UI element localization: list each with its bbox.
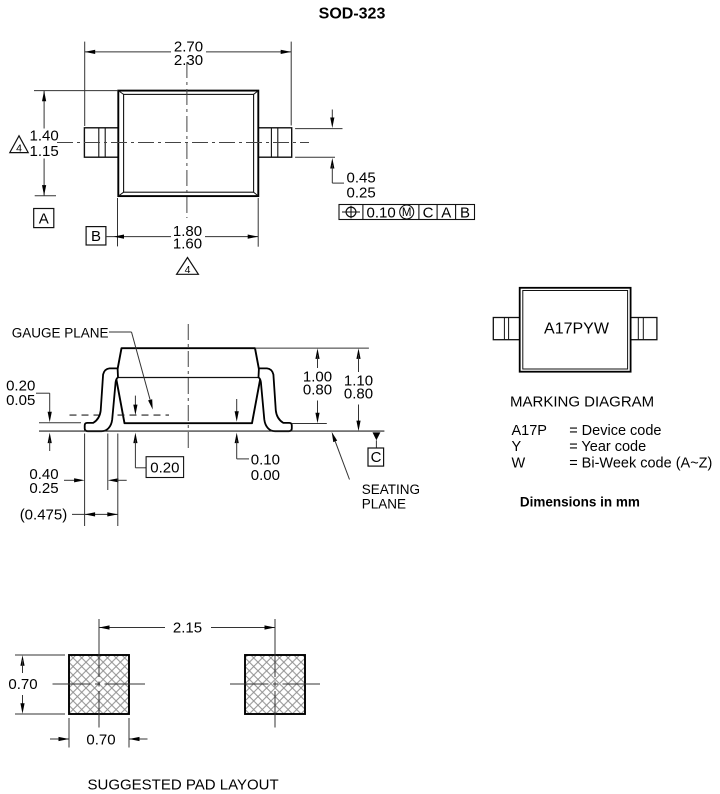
svg-text:0.10: 0.10 [367, 204, 396, 221]
svg-text:0.20: 0.20 [150, 459, 179, 476]
svg-text:MARKING DIAGRAM: MARKING DIAGRAM [510, 393, 654, 410]
svg-text:= Year code: = Year code [569, 439, 646, 455]
svg-text:= Device code: = Device code [569, 423, 661, 439]
svg-text:C: C [371, 449, 382, 466]
svg-text:0.25: 0.25 [347, 184, 376, 201]
svg-text:4: 4 [16, 142, 22, 154]
svg-text:A17PYW: A17PYW [544, 321, 610, 338]
svg-text:A: A [39, 210, 49, 227]
svg-text:Dimensions in mm: Dimensions in mm [520, 494, 640, 509]
svg-text:1.60: 1.60 [173, 236, 202, 253]
svg-text:2.30: 2.30 [174, 52, 203, 69]
svg-text:0.25: 0.25 [29, 480, 58, 497]
svg-text:C: C [423, 204, 434, 221]
svg-text:0.05: 0.05 [6, 392, 35, 409]
svg-text:A: A [441, 204, 451, 221]
svg-text:SUGGESTED PAD LAYOUT: SUGGESTED PAD LAYOUT [88, 776, 279, 793]
svg-text:M: M [402, 207, 412, 219]
svg-text:4: 4 [185, 264, 191, 276]
svg-text:B: B [91, 228, 101, 245]
svg-text:= Bi-Week code (A~Z): = Bi-Week code (A~Z) [569, 456, 712, 472]
svg-text:0.70: 0.70 [86, 731, 115, 748]
svg-text:(0.475): (0.475) [20, 506, 68, 523]
svg-text:GAUGE PLANE: GAUGE PLANE [12, 325, 109, 340]
svg-text:A17P: A17P [512, 423, 547, 439]
svg-text:2.15: 2.15 [173, 620, 202, 637]
svg-text:1.15: 1.15 [30, 143, 59, 160]
svg-text:SOD-323: SOD-323 [319, 6, 386, 23]
svg-text:PLANE: PLANE [362, 497, 406, 512]
svg-text:0.80: 0.80 [303, 382, 332, 399]
svg-text:Y: Y [512, 439, 522, 455]
svg-text:W: W [512, 456, 526, 472]
svg-text:0.70: 0.70 [8, 676, 37, 693]
svg-text:B: B [460, 204, 470, 221]
svg-text:0.00: 0.00 [251, 467, 280, 484]
svg-text:0.80: 0.80 [344, 386, 373, 403]
svg-text:SEATING: SEATING [362, 482, 420, 497]
